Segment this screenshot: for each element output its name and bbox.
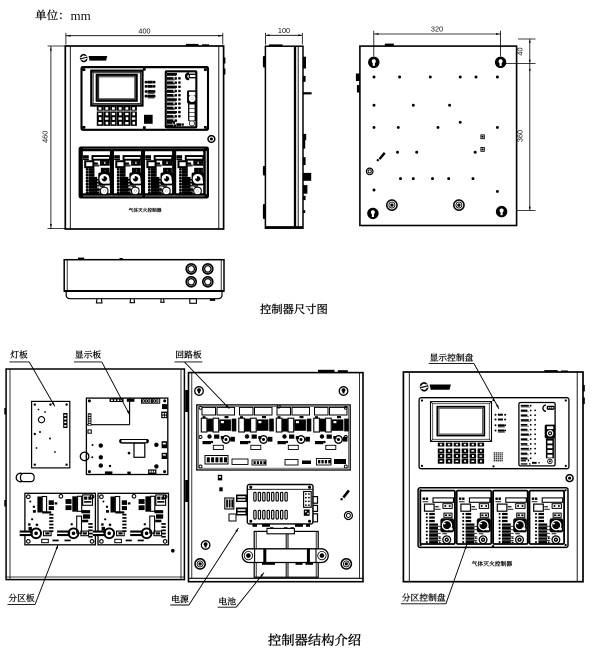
svg-text:460: 460 xyxy=(40,131,49,143)
svg-text:mm: mm xyxy=(71,8,91,23)
svg-text:400: 400 xyxy=(138,27,150,36)
svg-text:100: 100 xyxy=(278,26,290,35)
svg-text:320: 320 xyxy=(431,24,443,33)
